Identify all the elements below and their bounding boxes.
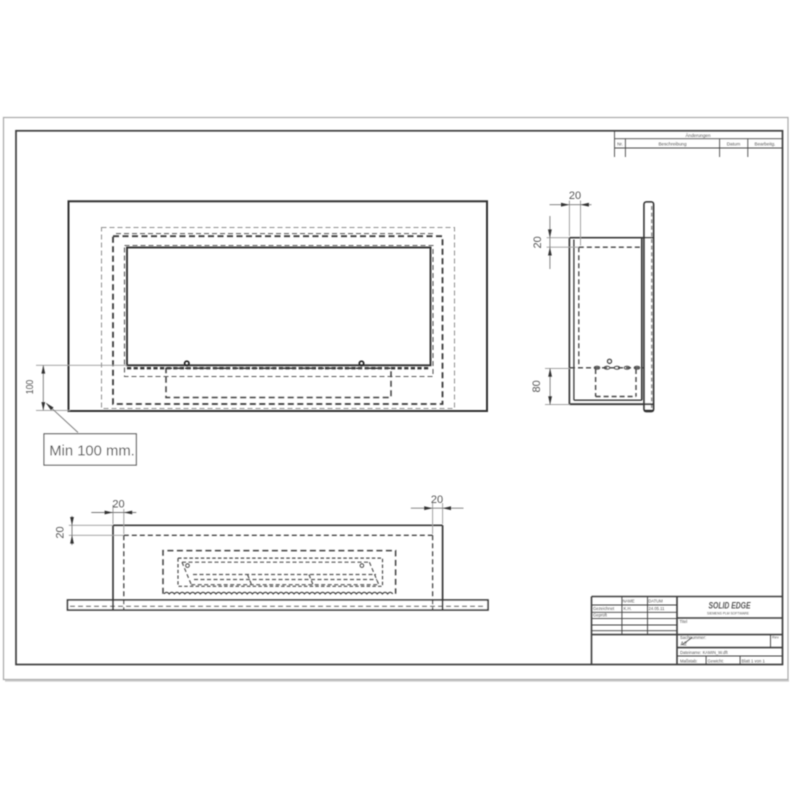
svg-text:Dateiname: KAMIN_W.dft: Dateiname: KAMIN_W.dft xyxy=(680,650,729,655)
svg-text:K.H.: K.H. xyxy=(624,606,632,611)
svg-text:Maßstab:: Maßstab: xyxy=(680,658,697,663)
svg-text:20: 20 xyxy=(431,494,443,506)
svg-text:Sachnummer:: Sachnummer: xyxy=(680,635,706,640)
svg-text:20: 20 xyxy=(55,526,67,538)
svg-text:Titel: Titel xyxy=(680,619,688,624)
svg-text:24.05.11: 24.05.11 xyxy=(649,606,666,611)
svg-text:Gezeichnet: Gezeichnet xyxy=(593,606,615,611)
svg-text:Änderungen: Änderungen xyxy=(685,132,710,138)
svg-text:Geprüft: Geprüft xyxy=(593,613,608,618)
svg-text:SIEMENS PLM SOFTWARE: SIEMENS PLM SOFTWARE xyxy=(707,611,749,616)
svg-text:100: 100 xyxy=(24,380,36,395)
svg-text:Rev: Rev xyxy=(772,636,779,640)
svg-text:Nr.: Nr. xyxy=(617,141,623,146)
svg-text:Bearbeitg.: Bearbeitg. xyxy=(755,141,776,146)
svg-text:20: 20 xyxy=(532,236,544,248)
svg-text:SOLID EDGE: SOLID EDGE xyxy=(709,599,752,610)
svg-text:Blatt 1 von 1: Blatt 1 von 1 xyxy=(742,658,766,663)
svg-text:Gewicht:: Gewicht: xyxy=(708,658,724,663)
svg-text:Beschreibung: Beschreibung xyxy=(658,141,687,146)
svg-text:Datum: Datum xyxy=(727,141,741,146)
svg-text:20: 20 xyxy=(569,190,581,202)
svg-text:20: 20 xyxy=(112,499,124,511)
svg-text:Min 100 mm.: Min 100 mm. xyxy=(49,444,135,460)
svg-text:NAME: NAME xyxy=(622,598,634,603)
svg-text:80: 80 xyxy=(531,380,543,392)
svg-text:DATUM: DATUM xyxy=(648,598,663,603)
